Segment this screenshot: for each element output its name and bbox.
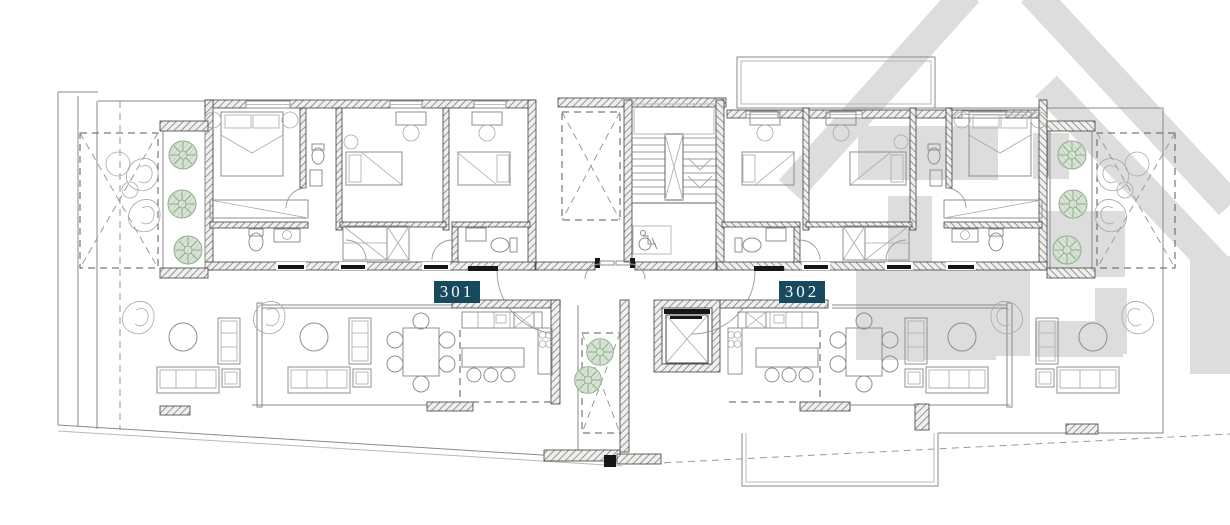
- floor-plan-page: 301 302: [0, 0, 1230, 525]
- watermark-house-logo: [790, 0, 1230, 374]
- lounge-set-301: [253, 302, 371, 393]
- accessible-wc: [633, 226, 671, 254]
- staircase: [632, 104, 716, 203]
- dining-301: [387, 313, 455, 392]
- light-well-shaft: [562, 112, 620, 220]
- kitchen-302: [724, 312, 820, 402]
- living-zone-301: [160, 300, 560, 415]
- unit-301-label[interactable]: 301: [434, 281, 480, 303]
- elevator: [654, 300, 720, 372]
- unit-302-label[interactable]: 302: [779, 281, 825, 303]
- unit-301-number: 301: [440, 282, 475, 301]
- kitchen-301: [460, 312, 556, 402]
- lounge-set-terrace-left: [122, 302, 240, 393]
- floor-plan-svg: 301 302: [0, 0, 1230, 525]
- balcony-bottom-center: [742, 433, 938, 486]
- center-planter: [544, 300, 661, 467]
- terrace-left: [80, 121, 208, 278]
- unit-302-bedroom-zone: [716, 100, 1047, 270]
- unit-302-number: 302: [785, 282, 820, 301]
- unit-301-bedroom-zone: [205, 100, 536, 270]
